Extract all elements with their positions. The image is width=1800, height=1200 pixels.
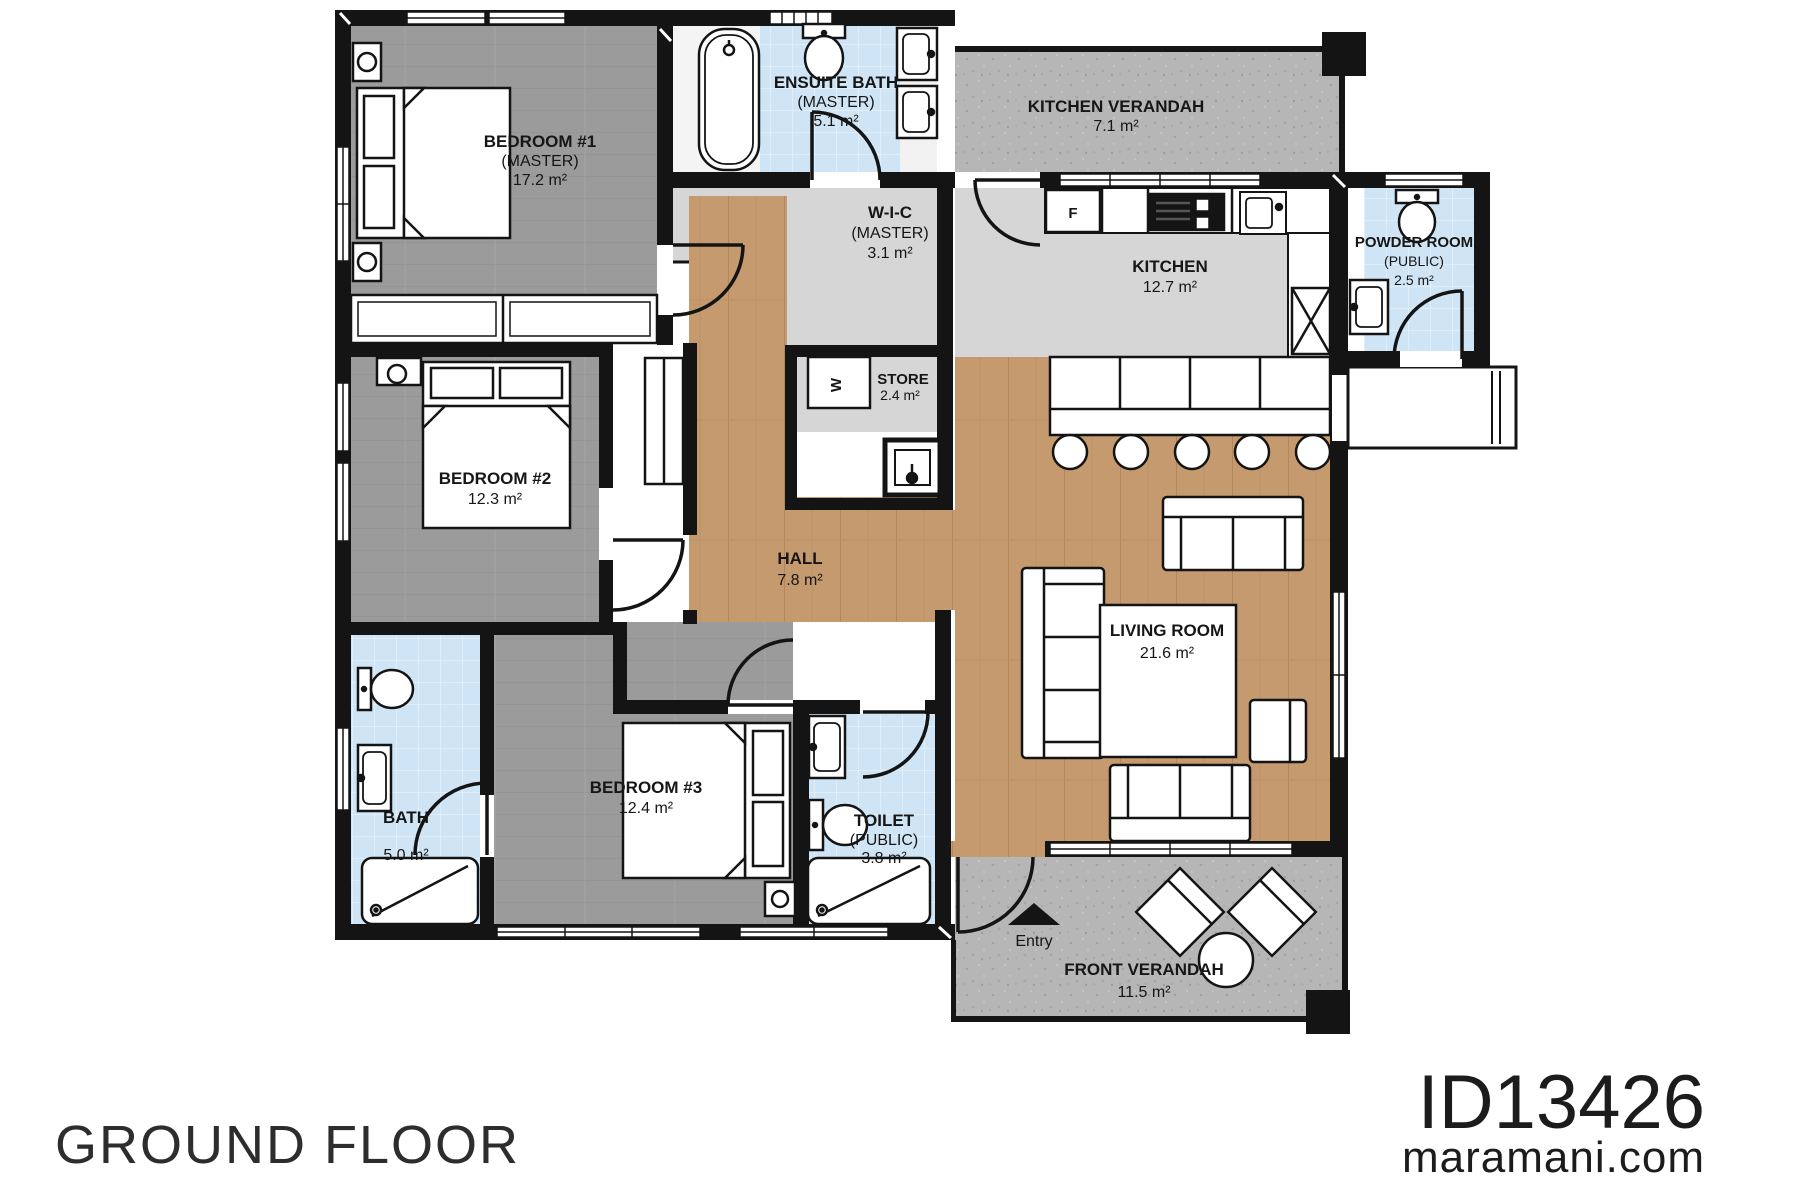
kitchen-top-window xyxy=(1060,174,1260,186)
ensuite-top-vent xyxy=(770,12,832,24)
ensuite-sub-label: (MASTER) xyxy=(797,94,874,111)
water-heater xyxy=(1292,288,1330,354)
floor-plan-drawing: BEDROOM #1 (MASTER) 17.2 m² ENSUITE BATH… xyxy=(0,0,1800,1200)
ensuite-toilet xyxy=(803,24,845,80)
bedroom3-name-label: BEDROOM #3 xyxy=(590,778,702,797)
floor-plan-page: BEDROOM #1 (MASTER) 17.2 m² ENSUITE BATH… xyxy=(0,0,1800,1200)
corridor-floor xyxy=(689,196,787,497)
bath-name-label: BATH xyxy=(383,808,429,827)
kitchen-name-label: KITCHEN xyxy=(1132,257,1208,276)
bath-vanity xyxy=(358,745,391,811)
toilet-sink xyxy=(809,716,845,778)
store-name-label: STORE xyxy=(877,371,928,388)
bedroom2-name-label: BEDROOM #2 xyxy=(439,469,551,488)
bedroom1-top-window-2 xyxy=(489,12,565,24)
kitchen-area-label: 12.7 m² xyxy=(1143,279,1198,296)
bedroom1-name-label: BEDROOM #1 xyxy=(484,132,596,151)
kitchen-verandah-area-label: 7.1 m² xyxy=(1093,118,1139,135)
floor-title: GROUND FLOOR xyxy=(55,1115,520,1175)
laundry-sink xyxy=(885,440,940,495)
bath-left-window xyxy=(337,728,349,810)
bedroom2-left-window xyxy=(337,383,349,451)
living-area-label: 21.6 m² xyxy=(1140,645,1195,662)
title-block: GROUND FLOOR ID13426 maramani.com xyxy=(55,1060,1705,1182)
bedroom2-left-window-2 xyxy=(337,463,349,541)
powder-sink xyxy=(1350,280,1388,334)
bedroom3-bottom-window xyxy=(497,927,700,937)
wic-name-label: W-I-C xyxy=(868,203,912,222)
kitchen-verandah-name-label: KITCHEN VERANDAH xyxy=(1028,97,1205,116)
living-name-label: LIVING ROOM xyxy=(1110,621,1224,640)
living-sofa-left xyxy=(1022,568,1104,758)
bedroom1-nightstand-bottom xyxy=(353,243,381,281)
entry-label: Entry xyxy=(1015,933,1052,950)
ensuite-name-label: ENSUITE BATH xyxy=(774,73,898,92)
living-east-window xyxy=(1333,592,1345,758)
entry-threshold xyxy=(951,841,1045,857)
bay-window xyxy=(1332,367,1516,448)
hall-name-label: HALL xyxy=(777,549,822,568)
ensuite-bathtub xyxy=(699,29,759,170)
stove xyxy=(1150,194,1224,230)
kitchen-sink xyxy=(1240,192,1286,234)
fridge-label: F xyxy=(1068,205,1077,222)
living-sofa-bottom xyxy=(1110,765,1250,841)
kitchen-island xyxy=(1050,357,1330,435)
toilet-shower xyxy=(808,858,930,924)
bedroom1-wardrobe xyxy=(351,295,657,343)
armchair xyxy=(1250,700,1306,762)
store-area-label: 2.4 m² xyxy=(880,387,920,403)
toilet-bottom-window xyxy=(740,927,888,937)
hall-area-label: 7.8 m² xyxy=(777,572,823,589)
bedroom1-area-label: 17.2 m² xyxy=(513,172,568,189)
bedroom1-nightstand-top xyxy=(353,43,381,81)
bedroom1-left-window xyxy=(337,147,349,261)
bedroom2-door xyxy=(613,540,683,610)
bath-area-label: 5.0 m² xyxy=(383,847,429,864)
toilet-area-label: 3.8 m² xyxy=(861,850,907,867)
wic-area-label: 3.1 m² xyxy=(867,245,913,262)
bedroom2-closet xyxy=(645,358,683,484)
ensuite-area-label: 5.1 m² xyxy=(813,113,859,130)
bedroom3-nightstand xyxy=(765,882,795,916)
toilet-name-label: TOILET xyxy=(854,811,915,830)
powder-top-window xyxy=(1385,174,1463,186)
toilet-sub-label: (PUBLIC) xyxy=(850,832,918,849)
powder-sub-label: (PUBLIC) xyxy=(1384,253,1444,269)
front-verandah-name-label: FRONT VERANDAH xyxy=(1064,960,1224,979)
wic-sub-label: (MASTER) xyxy=(851,225,928,242)
powder-area-label: 2.5 m² xyxy=(1394,272,1434,288)
bedroom1-top-window xyxy=(407,12,485,24)
bedroom2-nightstand xyxy=(377,358,421,385)
bedroom1-bed xyxy=(357,88,510,238)
hall-bridge-floor xyxy=(935,510,955,610)
front-verandah-area-label: 11.5 m² xyxy=(1117,984,1171,1001)
bath-shower xyxy=(362,858,478,924)
powder-name-label: POWDER ROOM xyxy=(1355,234,1473,251)
living-south-window xyxy=(1050,843,1292,855)
bedroom1-sub-label: (MASTER) xyxy=(501,153,578,170)
living-sofa-top xyxy=(1163,497,1303,570)
website: maramani.com xyxy=(1402,1133,1705,1182)
bedroom3-area-label: 12.4 m² xyxy=(619,800,674,817)
bath-toilet xyxy=(358,668,413,710)
washer-label: W xyxy=(828,377,845,392)
bedroom2-area-label: 12.3 m² xyxy=(468,491,523,508)
